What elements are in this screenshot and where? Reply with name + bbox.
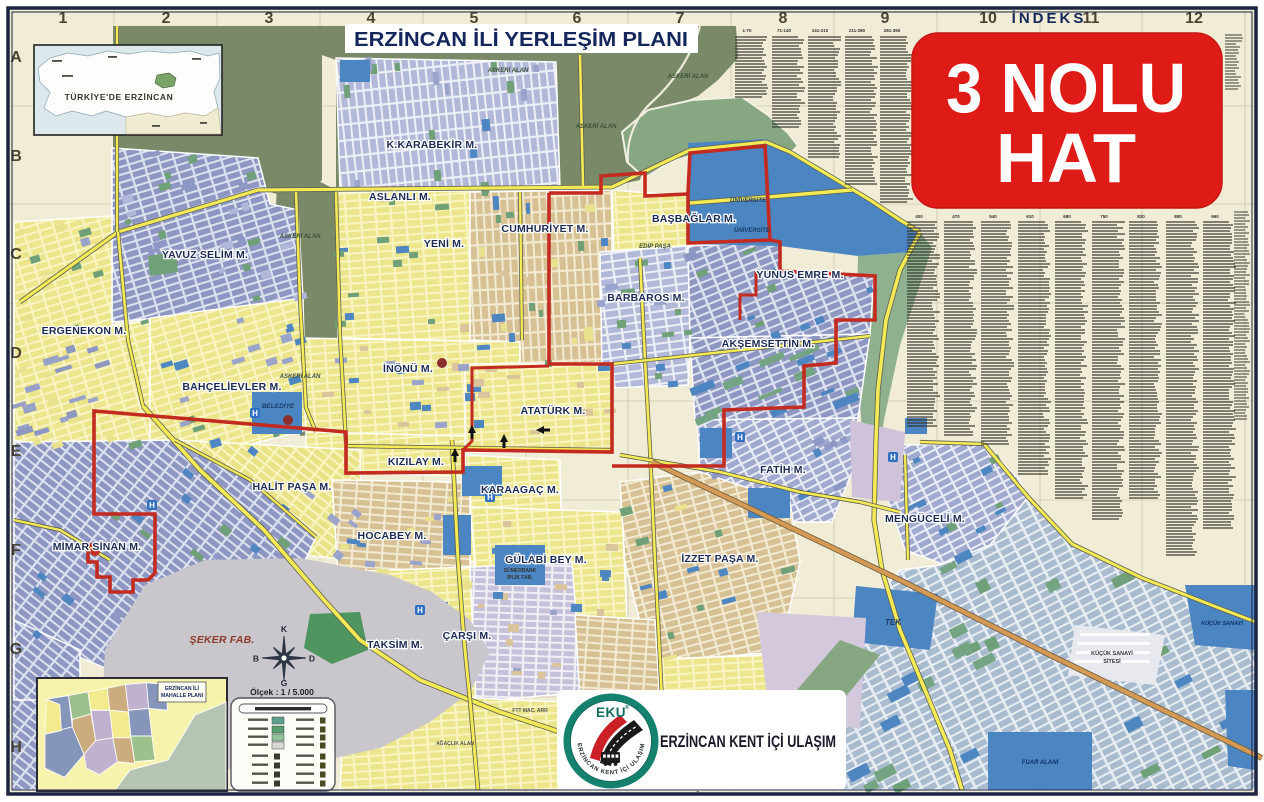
svg-text:ŞEKER FAB.: ŞEKER FAB. (189, 634, 254, 646)
svg-text:ERZİNCAN İLİ YERLEŞİM PLANI: ERZİNCAN İLİ YERLEŞİM PLANI (354, 28, 688, 51)
svg-text:HAT: HAT (996, 119, 1136, 197)
svg-text:KÜÇÜK SANAYİ: KÜÇÜK SANAYİ (1091, 650, 1133, 657)
svg-text:680: 680 (1063, 214, 1071, 219)
svg-text:ERGENEKON M.: ERGENEKON M. (42, 325, 127, 337)
svg-text:750: 750 (1100, 214, 1108, 219)
svg-text:FUAR ALANI: FUAR ALANI (1022, 760, 1059, 766)
svg-text:400: 400 (915, 214, 923, 219)
svg-text:YENİ M.: YENİ M. (424, 237, 465, 250)
svg-text:İPLİK FAB.: İPLİK FAB. (507, 574, 533, 581)
svg-text:12: 12 (1185, 10, 1203, 27)
svg-text:D: D (309, 654, 315, 664)
svg-text:B: B (253, 654, 259, 664)
svg-text:SÜMERBANK: SÜMERBANK (504, 567, 537, 574)
svg-text:ASKERİ ALAN: ASKERİ ALAN (575, 123, 617, 130)
svg-text:Ölçek : 1 / 5.000: Ölçek : 1 / 5.000 (250, 687, 314, 697)
svg-text:HOCABEY M.: HOCABEY M. (358, 530, 427, 542)
svg-text:AKŞEMSETTİN M.: AKŞEMSETTİN M. (722, 337, 815, 350)
svg-text:TEK: TEK (885, 618, 902, 627)
svg-text:960: 960 (1211, 214, 1219, 219)
svg-text:H: H (252, 409, 258, 418)
svg-text:MAHALLE PLANI: MAHALLE PLANI (161, 693, 203, 699)
svg-text:ÜNİVERSİTE: ÜNİVERSİTE (730, 197, 767, 204)
svg-text:TÜRKİYE'DE ERZİNCAN: TÜRKİYE'DE ERZİNCAN (65, 92, 174, 102)
svg-text:ERZİNCAN KENT İÇİ ULAŞIM: ERZİNCAN KENT İÇİ ULAŞIM (660, 733, 836, 751)
svg-text:ERZİNCAN İLİ: ERZİNCAN İLİ (165, 685, 199, 692)
svg-text:KIZILAY M.: KIZILAY M. (388, 456, 444, 468)
svg-text:TAKSİM M.: TAKSİM M. (367, 638, 423, 651)
svg-text:ASLANLI M.: ASLANLI M. (369, 191, 431, 203)
svg-text:YAVUZ SELİM M.: YAVUZ SELİM M. (162, 248, 248, 261)
svg-text:3 NOLU: 3 NOLU (946, 49, 1186, 127)
svg-text:GÜLABİ BEY M.: GÜLABİ BEY M. (505, 553, 587, 566)
svg-text:BARBAROS M.: BARBAROS M. (607, 292, 684, 304)
svg-text:YUNUS EMRE M.: YUNUS EMRE M. (756, 269, 843, 281)
svg-text:BELEDİYE: BELEDİYE (262, 402, 295, 410)
svg-text:ÜNİVERSİTE: ÜNİVERSİTE (734, 227, 771, 234)
svg-text:ÇARŞI M.: ÇARŞI M. (443, 630, 492, 642)
svg-text:İNDEKS: İNDEKS (1012, 10, 1087, 27)
svg-text:H: H (149, 501, 155, 510)
svg-text:H: H (890, 453, 896, 462)
svg-text:3: 3 (265, 10, 274, 27)
svg-text:MENGÜCELİ M.: MENGÜCELİ M. (885, 512, 965, 525)
svg-text:EKU: EKU (596, 705, 626, 720)
svg-text:1: 1 (59, 10, 68, 27)
svg-text:F: F (11, 542, 21, 559)
svg-text:KARAAGAÇ M.: KARAAGAÇ M. (481, 484, 559, 496)
svg-text:SİTESİ: SİTESİ (1103, 658, 1121, 665)
svg-text:MİMAR SİNAN M.: MİMAR SİNAN M. (53, 540, 142, 553)
svg-text:BAŞBAĞLAR M.: BAŞBAĞLAR M. (652, 212, 736, 225)
svg-text:FATİH M.: FATİH M. (760, 463, 806, 476)
svg-text:İNÖNÜ M.: İNÖNÜ M. (383, 362, 433, 375)
svg-text:820: 820 (1137, 214, 1145, 219)
svg-text:8: 8 (779, 10, 788, 27)
svg-text:ATATÜRK M.: ATATÜRK M. (521, 404, 586, 417)
svg-text:ASKERİ ALAN: ASKERİ ALAN (487, 67, 529, 74)
svg-text:ASKERİ ALAN: ASKERİ ALAN (279, 373, 321, 380)
svg-text:470: 470 (952, 214, 960, 219)
svg-text:EDİP PAŞA: EDİP PAŞA (639, 243, 671, 250)
svg-text:10: 10 (979, 10, 997, 27)
svg-text:1-70: 1-70 (742, 28, 752, 33)
svg-text:İZZET PAŞA M.: İZZET PAŞA M. (681, 552, 758, 565)
svg-text:CUMHURİYET M.: CUMHURİYET M. (501, 222, 588, 235)
svg-text:9: 9 (881, 10, 890, 27)
svg-text:141-210: 141-210 (812, 28, 829, 33)
svg-text:540: 540 (989, 214, 997, 219)
svg-text:®: ® (625, 704, 629, 711)
svg-text:FTT MAC. ARR: FTT MAC. ARR (512, 708, 548, 714)
svg-text:H: H (417, 606, 423, 615)
svg-text:890: 890 (1174, 214, 1182, 219)
svg-text:BAHÇELİEVLER M.: BAHÇELİEVLER M. (182, 380, 281, 393)
svg-text:ASKERİ ALAN: ASKERİ ALAN (279, 233, 321, 240)
svg-text:ASKERİ ALAN: ASKERİ ALAN (667, 73, 709, 80)
svg-text:281-350: 281-350 (884, 28, 901, 33)
svg-text:2: 2 (162, 10, 171, 27)
svg-text:KÜÇÜK SANAYİ: KÜÇÜK SANAYİ (1201, 620, 1243, 627)
svg-text:HALİT PAŞA M.: HALİT PAŞA M. (252, 480, 331, 493)
svg-text:K.KARABEKİR M.: K.KARABEKİR M. (387, 138, 478, 151)
svg-text:H: H (737, 433, 743, 442)
svg-text:610: 610 (1026, 214, 1034, 219)
svg-text:AĞAÇLIK ALAN: AĞAÇLIK ALAN (436, 739, 474, 747)
svg-text:71-140: 71-140 (777, 28, 792, 33)
svg-text:211-280: 211-280 (849, 28, 866, 33)
svg-text:K: K (281, 624, 288, 634)
